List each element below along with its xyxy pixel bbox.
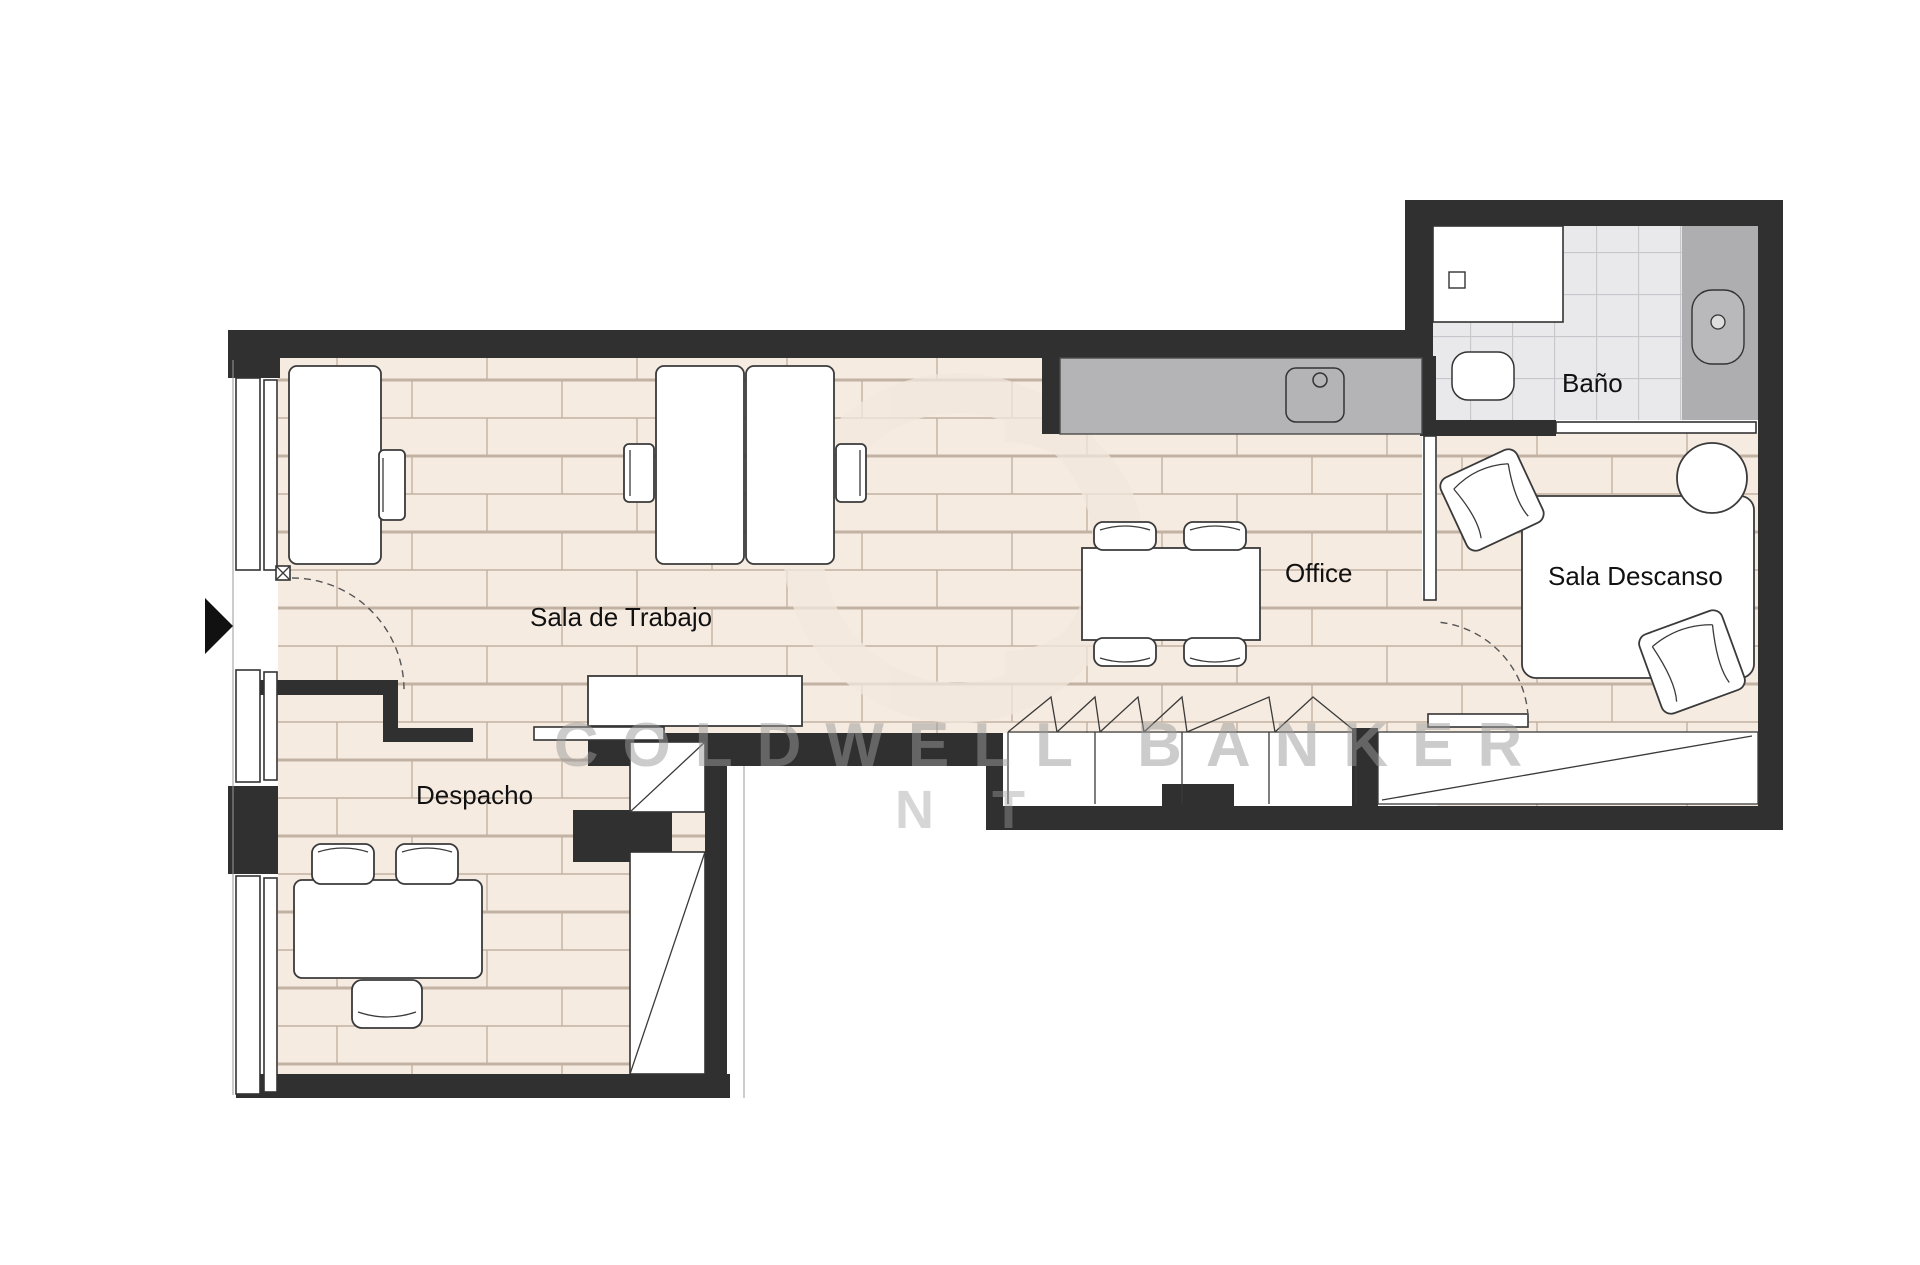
despacho-chair-1 bbox=[312, 844, 374, 884]
toilet-icon bbox=[1452, 352, 1514, 400]
floor-plan-svg: Sala de Trabajo Despacho Office Baño Sal… bbox=[0, 0, 1920, 1265]
label-office: Office bbox=[1285, 558, 1352, 588]
desk-2 bbox=[656, 366, 744, 564]
despacho-closet-panels bbox=[630, 742, 705, 1074]
bath-sliding-door bbox=[1556, 422, 1756, 433]
watermark-line-1: COLDWELL BANKER bbox=[554, 711, 1547, 780]
window-3 bbox=[236, 876, 260, 1094]
desk-1 bbox=[289, 366, 381, 564]
desk-3 bbox=[746, 366, 834, 564]
side-table-round bbox=[1677, 443, 1747, 513]
pillar-left bbox=[228, 786, 278, 874]
desk-3-chair bbox=[836, 444, 866, 502]
desk-2-chair bbox=[624, 444, 654, 502]
despacho-chair-2 bbox=[396, 844, 458, 884]
label-sala-descanso: Sala Descanso bbox=[1548, 561, 1723, 591]
despacho-chair-3 bbox=[352, 980, 422, 1028]
glass-partition bbox=[1424, 436, 1436, 600]
entry-jamb-box bbox=[276, 566, 290, 580]
entry-arrow-icon bbox=[205, 598, 233, 654]
office-table bbox=[1082, 548, 1260, 640]
vanity-counter bbox=[1682, 226, 1758, 420]
label-sala-de-trabajo: Sala de Trabajo bbox=[530, 602, 712, 632]
window-1 bbox=[236, 378, 260, 570]
washbasin-icon bbox=[1692, 290, 1744, 364]
watermark-line-2: NT bbox=[895, 780, 1083, 840]
label-despacho: Despacho bbox=[416, 780, 533, 810]
floor-plan-page: Sala de Trabajo Despacho Office Baño Sal… bbox=[0, 0, 1920, 1265]
shower-tray-icon bbox=[1433, 226, 1563, 322]
desk-1-chair bbox=[379, 450, 405, 520]
window-2 bbox=[236, 670, 260, 782]
despacho-desk bbox=[294, 880, 482, 978]
kitchen-counter bbox=[1060, 358, 1422, 434]
left-windows bbox=[236, 378, 277, 1094]
label-bano: Baño bbox=[1562, 368, 1623, 398]
